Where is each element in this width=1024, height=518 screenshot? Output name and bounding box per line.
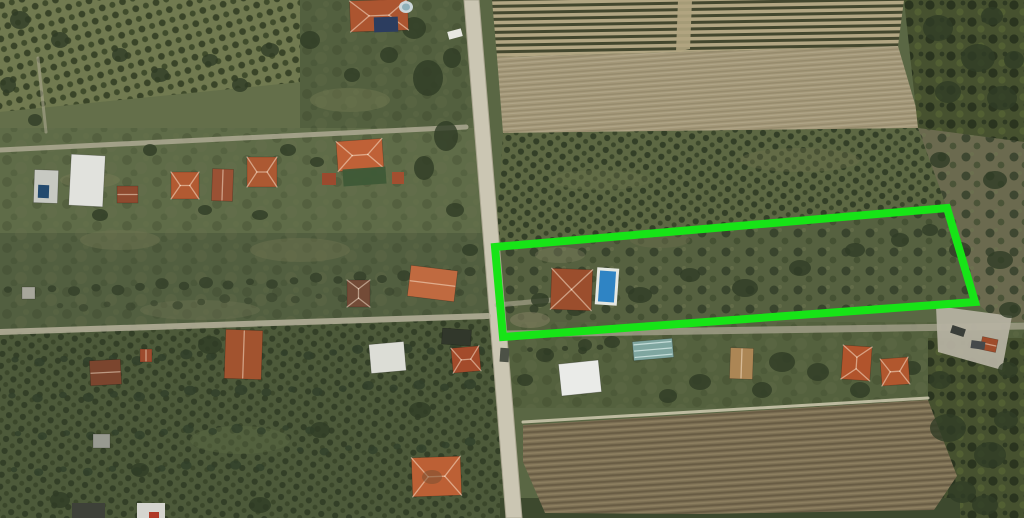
orchard-row <box>297 447 303 452</box>
tree <box>987 251 1013 269</box>
tree <box>446 203 464 217</box>
tree <box>310 422 330 438</box>
tree <box>50 492 70 508</box>
orchard-row <box>368 446 378 454</box>
hedge-row <box>197 299 205 306</box>
hedge-row <box>104 302 111 308</box>
orchard-row <box>110 391 118 398</box>
orchard-row <box>160 390 169 397</box>
orchard-row <box>231 424 242 433</box>
salmon-house <box>407 265 457 301</box>
hedge-row <box>338 295 347 303</box>
shed-c <box>140 349 152 362</box>
hedge-row <box>172 301 182 310</box>
orchard-row <box>465 437 476 446</box>
orchard-row <box>320 448 329 456</box>
orchard-row <box>157 354 166 361</box>
tree <box>280 144 296 156</box>
hedge-row <box>464 267 475 276</box>
tree <box>536 348 554 362</box>
tree <box>51 32 69 48</box>
tree <box>380 47 398 63</box>
roof <box>69 154 106 207</box>
car <box>500 348 510 363</box>
orchard-row <box>257 427 266 434</box>
orchard-row <box>329 349 337 355</box>
tree <box>112 48 128 62</box>
hedge-row <box>266 293 277 302</box>
roof-ridge <box>369 15 389 16</box>
roof-ridge <box>461 359 470 360</box>
orchard-row <box>8 393 15 399</box>
orchard-row <box>11 357 18 363</box>
orchard-row <box>288 386 295 392</box>
orchard-row <box>235 385 248 395</box>
hedge-row <box>79 304 88 312</box>
tree <box>261 43 279 57</box>
orchard-row <box>112 429 119 435</box>
tree <box>578 339 592 351</box>
tree <box>143 144 157 156</box>
hedge-row <box>290 277 299 284</box>
orchard-row <box>442 442 450 449</box>
tree <box>930 152 950 168</box>
orchard-row <box>261 388 271 396</box>
tree <box>922 224 938 236</box>
tree <box>769 352 795 372</box>
orchard-row <box>59 392 67 398</box>
hedge-row <box>310 273 322 283</box>
tree <box>604 336 620 348</box>
tree <box>92 209 108 221</box>
hedge-row <box>291 296 300 303</box>
dark-partial-building <box>72 503 105 518</box>
orchard-row <box>389 385 397 392</box>
brown-house <box>347 280 370 307</box>
hedge-row <box>68 286 80 296</box>
orchard-row <box>160 429 168 436</box>
tree <box>845 243 865 257</box>
hedge-row <box>91 284 100 291</box>
white-house-mid <box>369 342 406 374</box>
orchard-row <box>134 431 144 440</box>
tree <box>789 260 811 276</box>
round-pool-water <box>402 4 410 11</box>
terracotta-hall <box>224 329 263 379</box>
mottle <box>740 148 860 172</box>
bare-patch <box>510 312 550 328</box>
tree <box>972 495 998 515</box>
orchard-row <box>184 386 196 396</box>
hedge-row <box>246 278 254 285</box>
tree <box>752 382 772 398</box>
tree <box>891 233 909 247</box>
tree <box>983 171 1007 189</box>
tree <box>531 293 549 307</box>
tree <box>732 279 758 297</box>
orchard-row <box>34 358 44 367</box>
hedge-row <box>316 294 323 299</box>
tree <box>344 68 360 82</box>
red-shed <box>117 186 138 203</box>
courtyard-garden <box>342 167 386 187</box>
tree <box>998 362 1018 378</box>
gable-brown-house <box>89 359 121 386</box>
orchard-row <box>230 460 241 469</box>
orchard-row <box>211 389 220 397</box>
orchard-row <box>183 424 194 433</box>
orchard-row <box>312 387 323 396</box>
tree <box>930 414 966 442</box>
small-light-shed <box>22 287 35 299</box>
orange-hip-b <box>880 357 910 386</box>
solar-panels <box>374 17 399 33</box>
white-house-bottom <box>558 360 601 396</box>
shed-b <box>392 172 404 184</box>
tan-shed <box>729 348 753 380</box>
orchard-row <box>303 351 314 360</box>
orchard-row <box>256 464 265 471</box>
garden-row <box>597 344 604 349</box>
greenhouse <box>632 338 674 360</box>
terrain-layer <box>0 0 1024 518</box>
aerial-imagery <box>0 0 1024 518</box>
orchard-row <box>181 461 192 470</box>
hedge-row <box>333 276 342 284</box>
hedge-row <box>179 282 189 290</box>
hedge-row <box>57 303 63 308</box>
tree <box>628 287 652 303</box>
roof <box>558 360 601 396</box>
hedge-row <box>456 289 464 296</box>
tree <box>414 156 434 180</box>
orchard-row <box>109 466 116 472</box>
hedge-row <box>199 277 213 288</box>
tree <box>28 114 42 126</box>
orchard-row <box>282 425 289 430</box>
roof <box>441 328 471 346</box>
orchard-row <box>207 465 215 472</box>
garden-row <box>562 346 568 351</box>
tree <box>517 374 533 386</box>
shed-a <box>322 173 336 185</box>
orchard-row <box>83 393 94 402</box>
gray-shed <box>93 434 110 448</box>
tree <box>413 60 443 96</box>
orchard-row <box>416 444 426 453</box>
tree <box>680 268 700 282</box>
tree <box>689 374 711 390</box>
tree <box>151 68 169 82</box>
hedge-row <box>150 300 157 306</box>
tree <box>961 44 995 72</box>
orchard-row <box>206 353 215 361</box>
tree <box>310 157 324 167</box>
tree <box>981 7 1003 25</box>
hedge-row <box>377 275 387 283</box>
tree <box>131 463 149 477</box>
bare-patch <box>535 247 585 263</box>
tree <box>202 54 218 66</box>
tree <box>443 48 461 68</box>
orchard-row <box>339 385 347 391</box>
orchard-row <box>11 467 17 472</box>
hedge-row <box>48 285 57 292</box>
hip-house-1 <box>171 172 199 199</box>
hip-house-3 <box>247 157 277 187</box>
tree <box>198 205 212 215</box>
orchard-row <box>60 466 67 472</box>
villa-courtyard <box>422 470 442 484</box>
tree <box>1004 51 1024 69</box>
orchard-row <box>83 468 93 476</box>
tree <box>434 121 458 151</box>
orchard-row <box>440 384 449 391</box>
tan-plowed-field <box>497 46 922 133</box>
tree <box>974 442 1006 468</box>
orchard-row <box>38 432 47 440</box>
orchard-row <box>32 394 42 403</box>
orchard-row <box>180 349 192 359</box>
orchard-row <box>60 356 68 362</box>
mottle <box>250 238 350 262</box>
house-2 <box>211 169 233 202</box>
hedge-row <box>266 279 278 289</box>
red-partial-roof <box>149 512 159 518</box>
orchard-row <box>413 380 425 390</box>
hedge-row <box>384 288 394 296</box>
roof <box>22 287 35 299</box>
hedge-row <box>219 294 230 303</box>
garden-row <box>527 347 533 352</box>
tree <box>994 411 1018 429</box>
tree <box>999 302 1021 318</box>
mottle <box>310 88 390 112</box>
orchard-row <box>15 431 21 436</box>
vineyard-gap <box>676 0 692 52</box>
hedge-row <box>112 285 125 295</box>
plot-swimming-pool <box>595 267 620 305</box>
orchard-row <box>34 468 43 476</box>
orchard-row <box>352 345 363 354</box>
orchard-row <box>464 379 476 389</box>
long-house <box>336 138 384 171</box>
pool-tarp <box>38 185 49 198</box>
roof-ridge <box>890 371 899 372</box>
tree <box>462 244 478 256</box>
topright-woods <box>904 0 1024 142</box>
tree <box>232 78 248 92</box>
mottle <box>550 170 650 190</box>
dark-barn <box>441 328 471 346</box>
orchard-row <box>427 347 436 354</box>
tree <box>850 382 870 398</box>
orange-hip-a <box>841 345 872 381</box>
orchard-row <box>363 381 374 390</box>
tree <box>409 402 431 418</box>
hedge-row <box>155 278 168 289</box>
tree <box>935 81 961 103</box>
hedge-row <box>223 281 234 290</box>
tree <box>10 11 30 29</box>
tree <box>923 15 953 41</box>
white-barn <box>69 154 106 207</box>
orchard-row <box>345 445 352 451</box>
tree <box>198 336 222 354</box>
plot-house <box>550 268 592 310</box>
orchard-row <box>393 444 400 450</box>
tree <box>807 363 829 381</box>
mottle <box>80 230 160 250</box>
roof <box>369 342 406 374</box>
tree <box>659 389 677 403</box>
orchard-row <box>158 465 166 472</box>
orchard-row <box>133 392 145 401</box>
hedge-row <box>397 270 410 281</box>
hedge-row <box>244 297 252 304</box>
tree <box>929 371 951 389</box>
tree <box>249 497 271 513</box>
tree <box>948 481 976 503</box>
orchard-row <box>63 430 70 436</box>
hedge-row <box>4 286 12 292</box>
hedge-row <box>126 303 136 311</box>
orchard-row <box>208 428 216 435</box>
orchard-row <box>281 350 288 356</box>
tree <box>300 31 320 49</box>
tree <box>987 86 1017 110</box>
map-viewport[interactable] <box>0 0 1024 518</box>
tree <box>252 210 268 220</box>
pool-water <box>598 270 616 302</box>
roof-ridge <box>856 357 857 369</box>
tree <box>0 77 16 93</box>
hedge-row <box>135 283 145 291</box>
roof <box>93 434 110 448</box>
red-hip-house <box>451 346 481 373</box>
